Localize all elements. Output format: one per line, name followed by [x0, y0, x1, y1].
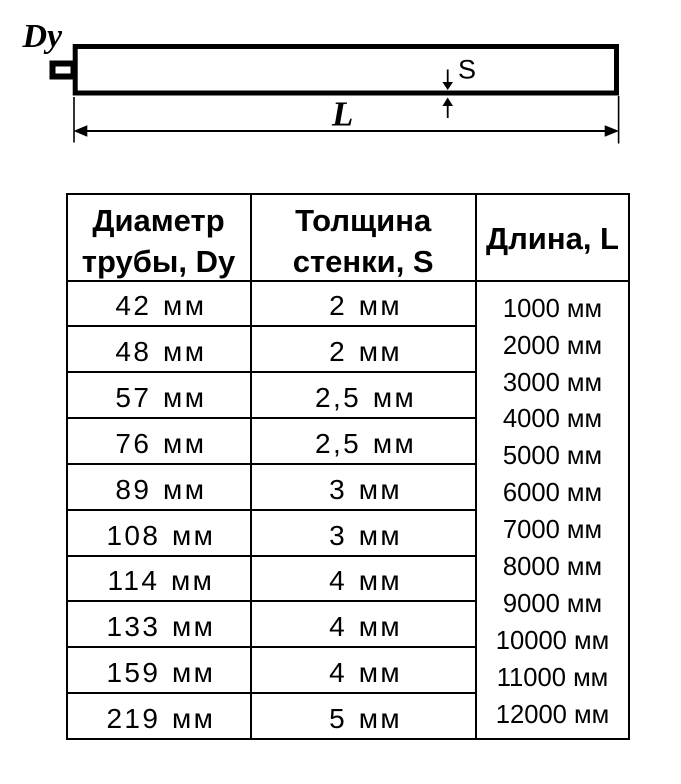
svg-text:S: S — [458, 55, 476, 85]
svg-text:Dy: Dy — [22, 18, 64, 55]
svg-text:L: L — [331, 95, 353, 134]
